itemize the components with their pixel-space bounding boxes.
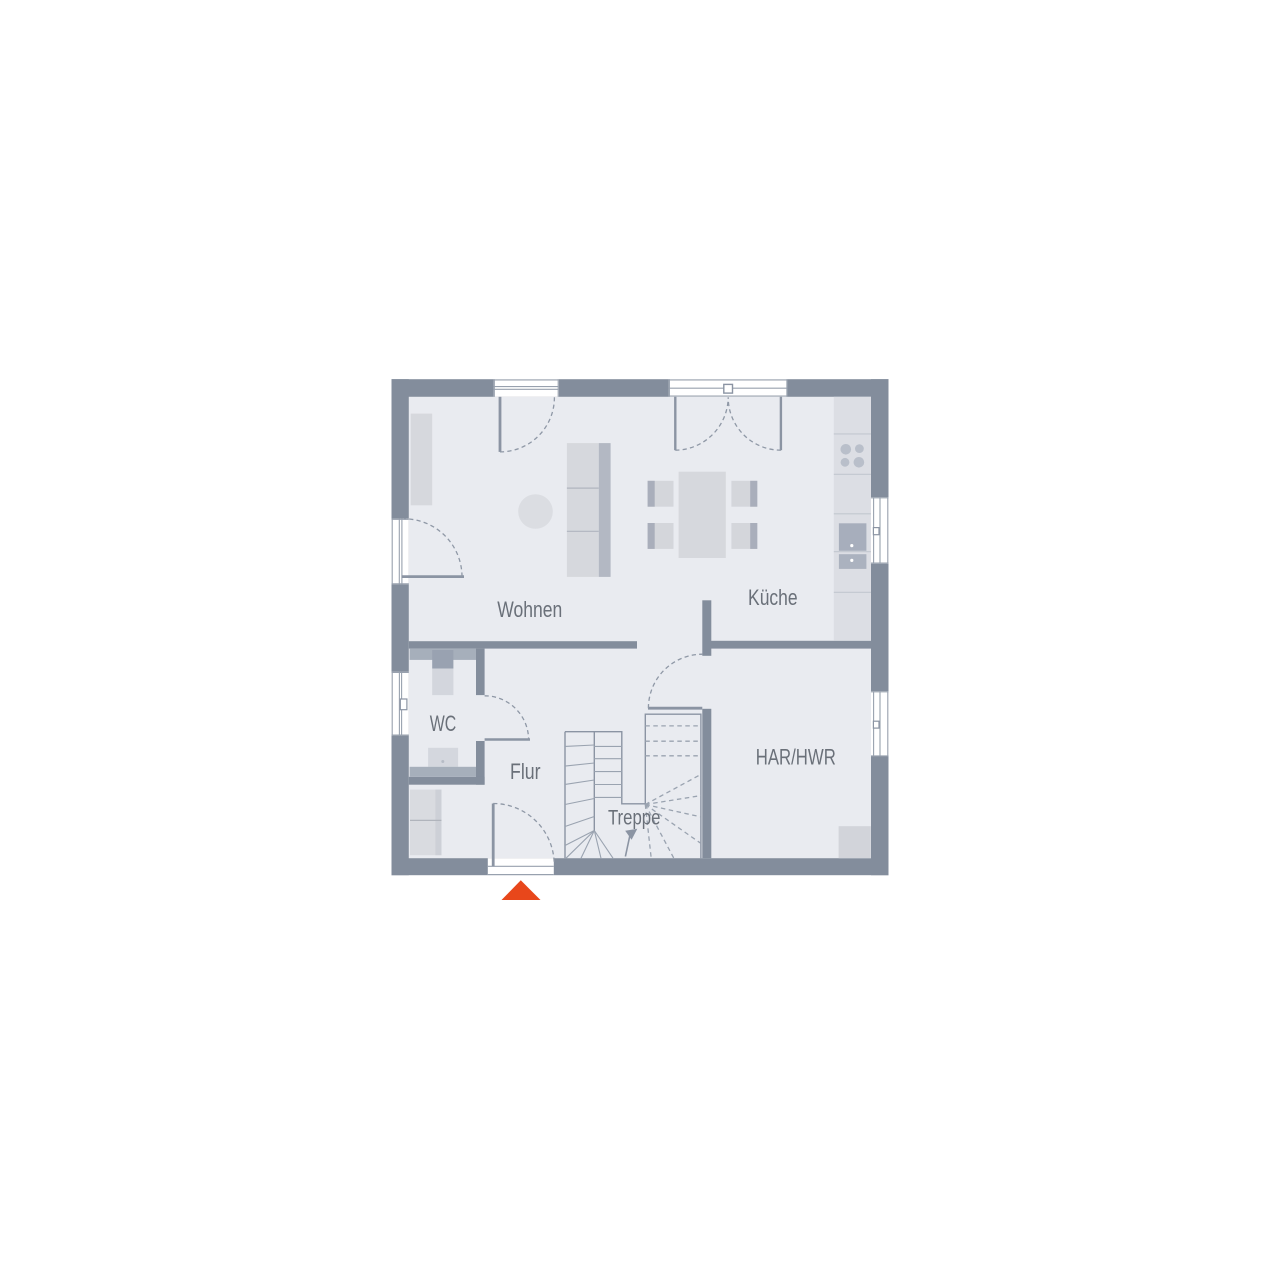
svg-text:Wohnen: Wohnen: [497, 597, 562, 622]
svg-text:Flur: Flur: [510, 759, 541, 784]
svg-text:HAR/HWR: HAR/HWR: [756, 745, 836, 770]
svg-text:Treppe: Treppe: [608, 805, 661, 829]
svg-text:WC: WC: [430, 711, 457, 736]
svg-text:Küche: Küche: [748, 585, 798, 610]
